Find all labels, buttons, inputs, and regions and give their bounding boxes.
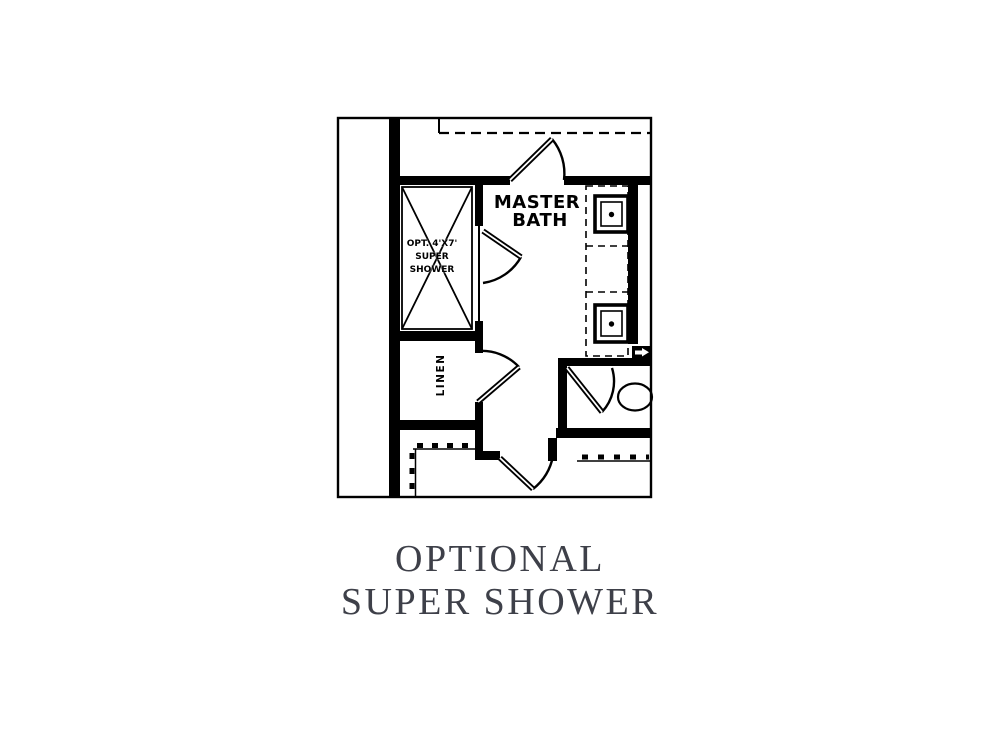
shower-label-line2: SUPER	[415, 252, 449, 262]
sink-2-icon	[595, 305, 628, 342]
wall-arrow-marker	[632, 346, 651, 359]
plan-labels: MASTER BATH OPT. 4'X7' SUPER SHOWER LINE…	[407, 192, 580, 396]
arrow-stem	[635, 351, 642, 355]
door-water-closet	[567, 368, 614, 412]
plan-border	[338, 118, 651, 497]
wall-shower-bottom	[400, 331, 483, 341]
wall-bottom-door-left	[475, 451, 500, 460]
shower-label-line1: OPT. 4'X7'	[407, 239, 458, 249]
wall-wc-bottom	[556, 428, 651, 438]
door-leaf-core	[478, 367, 519, 402]
walls	[389, 118, 651, 497]
caption-line-2: SUPER SHOWER	[0, 581, 1000, 624]
linen-label: LINEN	[435, 354, 447, 397]
door-leaf-core	[567, 368, 602, 412]
plan-outer-border	[338, 118, 651, 497]
shower-label-line3: SHOWER	[410, 265, 455, 275]
sink-drain	[609, 212, 614, 217]
wall-top-left	[400, 176, 510, 185]
wall-linen-bottom	[400, 420, 482, 430]
caption-line-1: OPTIONAL	[0, 538, 1000, 581]
plan-caption: OPTIONAL SUPER SHOWER	[0, 538, 1000, 624]
door-linen	[478, 351, 519, 402]
door-arc	[478, 351, 519, 367]
door-arc	[483, 257, 521, 283]
door-bottom-entry	[500, 456, 553, 489]
sink-drain	[609, 321, 614, 326]
door-arc	[602, 368, 614, 412]
page: MASTER BATH OPT. 4'X7' SUPER SHOWER LINE…	[0, 0, 1000, 750]
door-leaf-core	[483, 231, 521, 257]
vanity	[586, 186, 628, 356]
wall-wc-top	[558, 358, 651, 366]
door-arc	[552, 139, 564, 180]
toilet-icon	[618, 384, 652, 411]
wall-shower-right-top	[475, 185, 483, 226]
door-shower	[483, 231, 521, 283]
door-top-entry	[510, 139, 564, 180]
floor-plan-drawing: MASTER BATH OPT. 4'X7' SUPER SHOWER LINE…	[0, 0, 1000, 750]
wall-left-main	[389, 118, 400, 497]
sink-1-icon	[595, 196, 628, 232]
door-leaf-core	[500, 458, 533, 489]
door-leaf-core	[510, 139, 552, 180]
master-bath-label-line2: BATH	[512, 210, 568, 231]
